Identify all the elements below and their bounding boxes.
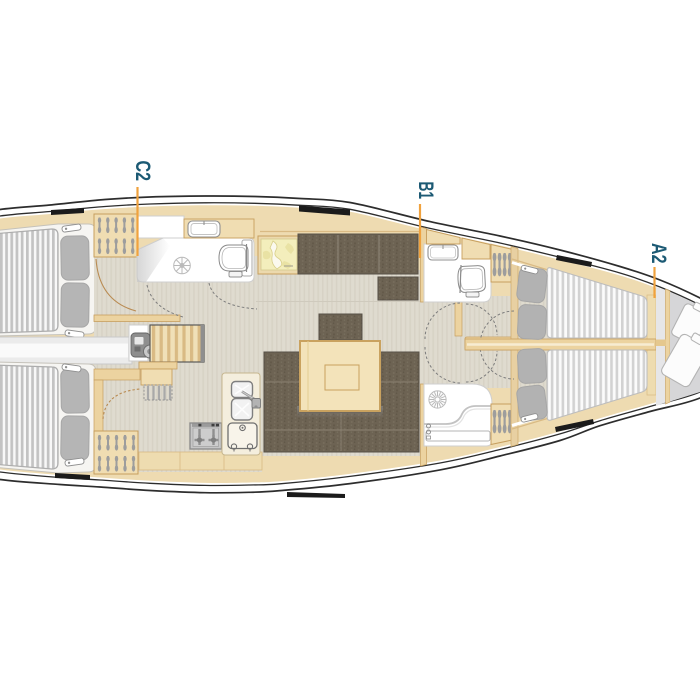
svg-text:A2: A2 — [647, 243, 670, 264]
svg-text:C2: C2 — [131, 161, 154, 182]
svg-text:B1: B1 — [414, 182, 437, 200]
